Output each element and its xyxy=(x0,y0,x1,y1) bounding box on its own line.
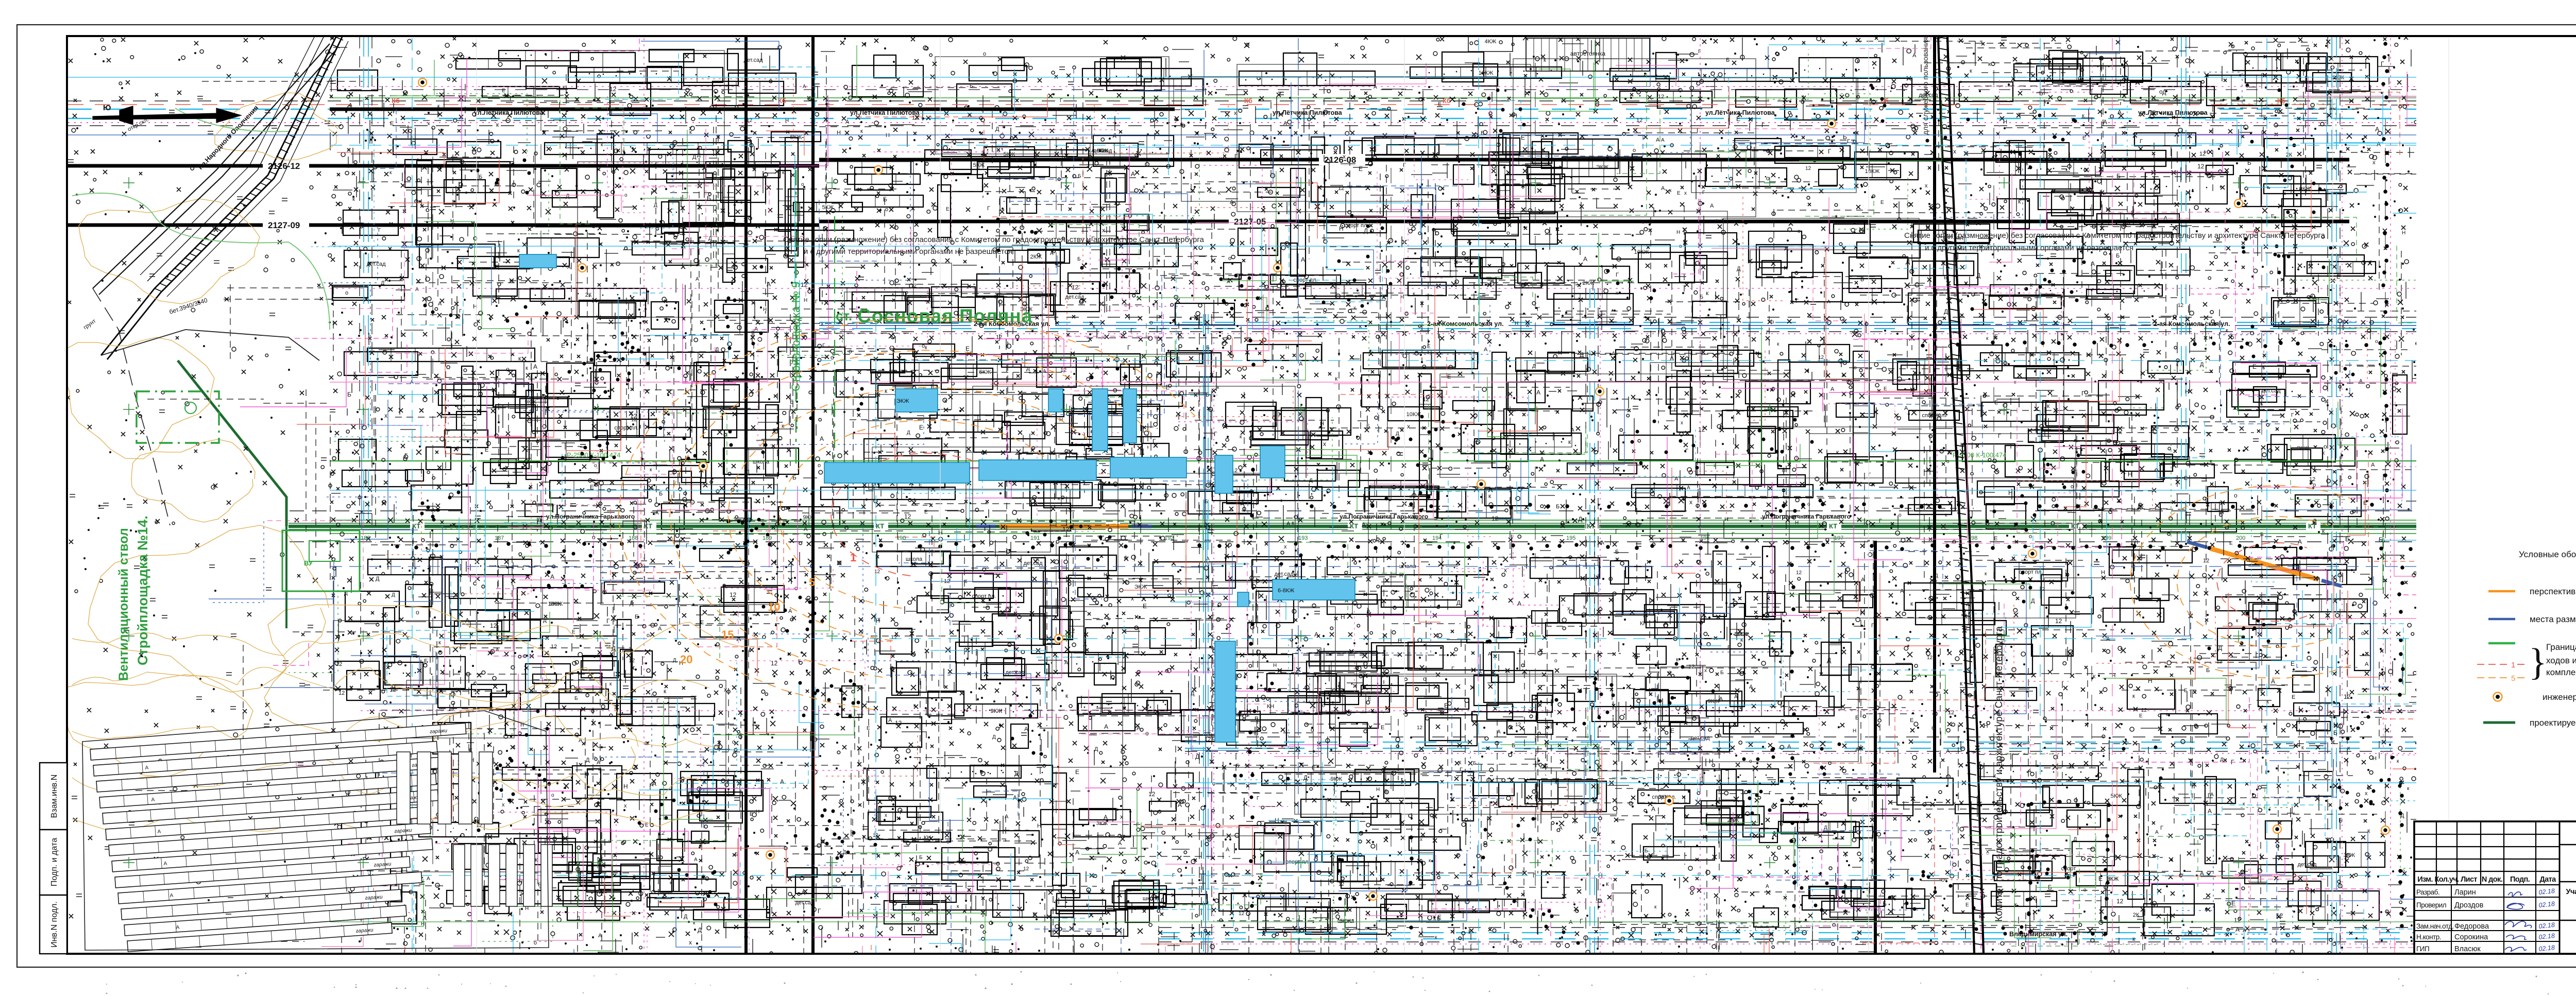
svg-text:192: 192 xyxy=(1164,535,1174,541)
svg-text:Снятие копии (размножение) без: Снятие копии (размножение) без согласова… xyxy=(783,235,1205,244)
svg-text:к: к xyxy=(2014,902,2017,908)
svg-text:о: о xyxy=(885,207,888,213)
svg-text:о: о xyxy=(594,463,597,469)
svg-text:КН: КН xyxy=(1640,621,1647,627)
svg-text:Е: Е xyxy=(1677,191,1681,196)
svg-text:к: к xyxy=(1207,665,1210,673)
svg-text:А: А xyxy=(1571,427,1574,433)
svg-text:Дата: Дата xyxy=(2539,875,2556,884)
svg-text:к: к xyxy=(1586,870,1589,878)
svg-text:2К: 2К xyxy=(2286,152,2293,158)
svg-text:Власюк: Власюк xyxy=(2454,945,2481,953)
svg-text:А: А xyxy=(754,326,758,332)
svg-text:Разраб.: Разраб. xyxy=(2416,888,2439,896)
svg-text:А: А xyxy=(1601,540,1604,546)
svg-text:Д: Д xyxy=(745,469,750,476)
svg-text:КТ: КТ xyxy=(1829,522,1837,530)
svg-text:к: к xyxy=(2296,288,2298,294)
svg-text:x: x xyxy=(1689,499,1692,506)
svg-text:ЭКЖ: ЭКЖ xyxy=(2297,445,2309,452)
svg-text:Б: Б xyxy=(1479,671,1483,678)
svg-text:196: 196 xyxy=(1700,535,1709,541)
svg-text:Д: Д xyxy=(1210,706,1214,712)
svg-text:о: о xyxy=(2150,900,2153,906)
svg-text:Б: Б xyxy=(1054,218,1057,225)
svg-text:А: А xyxy=(1283,121,1287,127)
svg-text:А: А xyxy=(1050,251,1054,256)
svg-text:о: о xyxy=(2029,534,2032,540)
svg-text:Д: Д xyxy=(2200,362,2204,368)
svg-text:о: о xyxy=(1149,319,1153,326)
svg-text:Б: Б xyxy=(1758,833,1762,838)
svg-text:к: к xyxy=(1960,680,1963,687)
svg-text:к: к xyxy=(1217,385,1219,390)
svg-text:12: 12 xyxy=(1422,396,1430,403)
svg-text:Н: Н xyxy=(1273,663,1277,668)
svg-text:Владимирская ул.: Владимирская ул. xyxy=(2009,931,2067,938)
svg-text:Б: Б xyxy=(1206,345,1210,351)
svg-text:дет.сад: дет.сад xyxy=(1023,560,1043,566)
svg-text:x: x xyxy=(1284,544,1287,550)
svg-text:12: 12 xyxy=(891,634,897,641)
svg-text:о: о xyxy=(1899,512,1902,518)
svg-text:А: А xyxy=(1918,673,1921,679)
svg-text:x: x xyxy=(1616,290,1618,296)
svg-text:193: 193 xyxy=(1298,535,1308,541)
svg-text:Б: Б xyxy=(1078,174,1081,179)
svg-text:Д: Д xyxy=(698,926,702,934)
svg-text:о: о xyxy=(416,609,419,616)
svg-text:о: о xyxy=(1311,726,1314,733)
svg-text:А: А xyxy=(1827,299,1831,305)
svg-text:ВУ: ВУ xyxy=(304,559,313,567)
svg-text:Д: Д xyxy=(684,914,688,920)
svg-text:А: А xyxy=(1226,847,1230,853)
svg-text:о: о xyxy=(1668,668,1672,676)
svg-text:x: x xyxy=(1953,800,1956,806)
svg-text:x: x xyxy=(1684,191,1687,196)
svg-text:199: 199 xyxy=(2102,535,2111,541)
svg-text:x: x xyxy=(1343,153,1346,160)
svg-text:А: А xyxy=(163,861,167,867)
svg-text:о: о xyxy=(1807,502,1810,507)
svg-text:Б: Б xyxy=(919,855,923,861)
svg-text:А: А xyxy=(801,889,805,897)
svg-text:Д: Д xyxy=(1976,272,1980,279)
svg-text:Г: Г xyxy=(1153,438,1156,445)
svg-text:Д: Д xyxy=(1580,351,1584,358)
svg-text:А: А xyxy=(1540,456,1544,463)
svg-text:к: к xyxy=(2132,935,2136,942)
svg-text:Е: Е xyxy=(1994,536,1997,542)
svg-text:к: к xyxy=(1910,600,1913,607)
svg-text:Е: Е xyxy=(1368,696,1371,702)
svg-text:проектируемая линия метрополит: проектируемая линия метрополитена xyxy=(2530,718,2576,728)
svg-text:12: 12 xyxy=(1338,882,1345,887)
svg-text:Г: Г xyxy=(1828,148,1832,155)
svg-text:Г: Г xyxy=(900,810,903,816)
svg-text:о: о xyxy=(1360,830,1363,836)
svg-text:Б: Б xyxy=(479,174,482,180)
svg-text:А: А xyxy=(1651,805,1655,813)
svg-text:Г: Г xyxy=(1755,926,1758,932)
svg-text:А: А xyxy=(2117,109,2122,116)
svg-text:Д: Д xyxy=(392,592,395,598)
svg-text:к: к xyxy=(1979,913,1982,920)
svg-text:к: к xyxy=(352,196,355,202)
svg-text:Н: Н xyxy=(886,132,890,139)
svg-text:А: А xyxy=(1484,347,1488,353)
svg-text:Б: Б xyxy=(1236,763,1240,769)
svg-text:дет.сад: дет.сад xyxy=(2297,862,2317,868)
svg-text:Б: Б xyxy=(2116,253,2120,259)
svg-text:ул.Лётчика Пилютова: ул.Лётчика Пилютова xyxy=(2138,109,2208,116)
svg-text:о: о xyxy=(1771,319,1774,325)
svg-text:Е: Е xyxy=(635,614,638,620)
svg-text:и с другими территориальными о: и с другими территориальными органами не… xyxy=(804,247,1012,256)
svg-text:А: А xyxy=(1661,185,1665,192)
svg-text:Б: Б xyxy=(659,491,663,497)
svg-text:к: к xyxy=(664,688,667,695)
svg-text:Д: Д xyxy=(2162,90,2166,96)
svg-text:А: А xyxy=(1043,369,1046,374)
svg-text:Г: Г xyxy=(1451,666,1454,672)
svg-text:12: 12 xyxy=(1818,355,1824,360)
svg-text:x: x xyxy=(1149,399,1152,405)
svg-text:Кб: Кб xyxy=(392,97,400,105)
svg-text:А: А xyxy=(1734,694,1738,700)
svg-text:Г: Г xyxy=(987,205,990,212)
svg-text:Г: Г xyxy=(1687,746,1690,753)
svg-text:12: 12 xyxy=(629,658,635,664)
svg-text:А: А xyxy=(1749,684,1753,690)
svg-text:Н.контр.: Н.контр. xyxy=(2416,933,2441,941)
svg-text:Д: Д xyxy=(929,907,933,913)
svg-text:198: 198 xyxy=(1968,535,1977,541)
svg-text:200: 200 xyxy=(2236,535,2245,541)
svg-text:Б: Б xyxy=(707,195,711,202)
svg-text:Г: Г xyxy=(459,308,462,314)
svg-text:Н: Н xyxy=(1984,722,1988,729)
svg-text:Г: Г xyxy=(1616,272,1619,278)
svg-text:дет.сад: дет.сад xyxy=(1274,571,1294,577)
svg-text:Д: Д xyxy=(708,236,712,242)
svg-text:12: 12 xyxy=(904,513,911,520)
svg-text:Г: Г xyxy=(1698,49,1701,55)
svg-text:Г: Г xyxy=(1058,454,1061,459)
svg-text:А: А xyxy=(2313,295,2317,302)
svg-text:к: к xyxy=(1218,189,1221,196)
svg-text:к: к xyxy=(2176,362,2179,368)
svg-text:школа: школа xyxy=(1337,918,1354,924)
svg-text:12: 12 xyxy=(747,118,753,124)
svg-text:Г: Г xyxy=(2326,158,2329,164)
svg-text:А: А xyxy=(1206,556,1210,562)
svg-text:к: к xyxy=(1897,740,1900,747)
svg-text:ЭКЖ: ЭКЖ xyxy=(1735,631,1748,638)
svg-text:А: А xyxy=(1131,170,1135,178)
svg-text:комплекса): комплекса) xyxy=(2546,667,2576,677)
svg-text:о: о xyxy=(1506,229,1510,236)
svg-text:Б: Б xyxy=(1481,130,1484,136)
svg-text:188: 188 xyxy=(629,535,638,541)
svg-text:А: А xyxy=(438,301,442,307)
svg-text:ГИП: ГИП xyxy=(2416,945,2429,953)
svg-text:А: А xyxy=(1124,555,1128,561)
svg-text:12: 12 xyxy=(2055,617,2062,625)
svg-text:Г: Г xyxy=(1956,822,1959,828)
svg-text:x: x xyxy=(944,397,947,404)
svg-text:10КЖ: 10КЖ xyxy=(1865,168,1880,175)
svg-text:12: 12 xyxy=(895,719,902,727)
svg-text:15: 15 xyxy=(721,628,734,641)
svg-text:Б: Б xyxy=(1843,133,1847,141)
svg-text:спорт пл.: спорт пл. xyxy=(972,593,996,599)
svg-text:x: x xyxy=(2024,553,2027,560)
svg-text:к: к xyxy=(1292,519,1295,526)
svg-text:Е: Е xyxy=(965,345,970,352)
svg-text:Г: Г xyxy=(1840,572,1843,578)
svg-text:к: к xyxy=(2030,281,2033,288)
svg-text:x: x xyxy=(2372,160,2376,166)
svg-text:А: А xyxy=(1612,351,1616,357)
svg-text:x: x xyxy=(885,813,887,818)
svg-text:А: А xyxy=(1178,801,1182,809)
svg-text:Б: Б xyxy=(2338,817,2343,824)
svg-text:А: А xyxy=(1341,688,1344,694)
svg-text:о: о xyxy=(2177,224,2180,230)
svg-text:Г: Г xyxy=(1127,344,1131,351)
svg-text:А: А xyxy=(1064,660,1069,666)
svg-text:пл.: пл. xyxy=(2064,873,2072,879)
svg-text:к: к xyxy=(1107,654,1109,660)
svg-text:x: x xyxy=(821,321,824,327)
svg-text:к: к xyxy=(1459,759,1462,766)
svg-text:Б: Б xyxy=(1645,848,1648,854)
svg-text:Д: Д xyxy=(577,916,580,921)
svg-text:к: к xyxy=(517,248,520,254)
svg-text:1: 1 xyxy=(850,551,856,564)
svg-text:Федорова: Федорова xyxy=(2454,922,2489,931)
svg-text:Б: Б xyxy=(883,196,887,203)
svg-text:к: к xyxy=(782,170,785,176)
svg-text:Г: Г xyxy=(592,479,596,485)
svg-text:Кб: Кб xyxy=(1244,97,1252,105)
svg-text:А: А xyxy=(1766,884,1769,889)
svg-text:А: А xyxy=(694,857,698,863)
svg-text:Г: Г xyxy=(2381,60,2384,67)
svg-text:к: к xyxy=(2224,938,2227,944)
svg-text:12: 12 xyxy=(2285,291,2293,298)
svg-text:Д: Д xyxy=(1632,87,1636,92)
svg-text:КТ: КТ xyxy=(876,522,884,530)
svg-text:А: А xyxy=(1095,365,1099,371)
svg-text:Б: Б xyxy=(1109,447,1113,452)
svg-text:x: x xyxy=(1925,183,1928,189)
svg-text:Б: Б xyxy=(1205,499,1208,505)
svg-text:Н: Н xyxy=(2209,335,2212,341)
svg-text:Комитет по градостроительству: Комитет по градостроительству и архитект… xyxy=(1994,626,2005,922)
svg-text:x: x xyxy=(1234,110,1237,116)
svg-text:Н: Н xyxy=(1724,517,1728,523)
svg-text:к: к xyxy=(895,795,897,801)
svg-text:x: x xyxy=(384,412,387,419)
svg-text:о: о xyxy=(1946,459,1950,465)
svg-text:А: А xyxy=(1374,84,1377,90)
svg-text:А: А xyxy=(1605,153,1609,161)
svg-text:x: x xyxy=(1420,837,1422,843)
svg-text:Г: Г xyxy=(815,299,818,305)
svg-text:к: к xyxy=(2407,786,2410,792)
svg-text:Е: Е xyxy=(1736,115,1740,123)
svg-text:Е: Е xyxy=(700,620,704,626)
svg-text:5КЖ: 5КЖ xyxy=(1004,151,1015,158)
svg-text:А: А xyxy=(2371,462,2375,468)
svg-text:x: x xyxy=(1704,668,1707,674)
svg-text:А: А xyxy=(550,573,554,580)
svg-text:о: о xyxy=(1931,724,1935,731)
svg-text:Е: Е xyxy=(924,509,928,515)
svg-text:Д: Д xyxy=(697,152,701,158)
svg-text:А: А xyxy=(1912,53,1917,59)
svg-text:А: А xyxy=(2235,926,2240,933)
svg-text:Дроздов: Дроздов xyxy=(2454,901,2484,909)
svg-text:Д: Д xyxy=(543,618,547,624)
svg-text:к: к xyxy=(1654,904,1657,910)
svg-text:Д: Д xyxy=(1944,308,1948,315)
svg-text:к: к xyxy=(2210,458,2212,465)
svg-text:Д: Д xyxy=(1532,364,1536,369)
svg-text:А: А xyxy=(1497,729,1501,735)
svg-text:к: к xyxy=(2283,664,2286,670)
svg-text:Г: Г xyxy=(1537,306,1540,313)
svg-text:к: к xyxy=(2132,693,2135,699)
svg-text:к: к xyxy=(1669,188,1672,194)
svg-text:Е: Е xyxy=(2184,475,2188,482)
svg-text:А: А xyxy=(1855,747,1859,753)
svg-text:Б: Б xyxy=(2131,210,2135,217)
svg-text:ЭКЖ: ЭКЖ xyxy=(896,398,909,404)
svg-text:12: 12 xyxy=(996,334,1002,340)
svg-text:194: 194 xyxy=(1432,535,1442,541)
svg-text:к: к xyxy=(885,387,888,394)
svg-text:Е: Е xyxy=(913,354,917,359)
svg-text:А: А xyxy=(176,925,180,931)
svg-text:А: А xyxy=(820,435,824,442)
svg-text:Б: Б xyxy=(1720,670,1724,676)
svg-text:Д: Д xyxy=(2218,644,2222,651)
svg-text:12: 12 xyxy=(1072,284,1079,291)
svg-text:Г: Г xyxy=(404,453,408,459)
svg-text:x: x xyxy=(446,846,449,853)
svg-text:места размещения вестибюлей: места размещения вестибюлей xyxy=(2530,614,2576,624)
svg-text:Е: Е xyxy=(415,226,418,231)
svg-text:ходов и щитовой проходки (и со: ходов и щитовой проходки (и сооружения с… xyxy=(2546,656,2576,665)
svg-text:А: А xyxy=(803,84,806,90)
svg-text:КТ: КТ xyxy=(1350,522,1358,530)
svg-text:Е: Е xyxy=(2271,214,2275,219)
svg-text:А: А xyxy=(1900,588,1904,594)
svg-text:Д: Д xyxy=(1827,657,1831,664)
svg-text:к: к xyxy=(2236,618,2239,624)
svg-text:12: 12 xyxy=(1698,426,1705,433)
svg-text:Г: Г xyxy=(1795,298,1799,304)
svg-text:к: к xyxy=(1986,336,1989,341)
svg-text:А: А xyxy=(1005,814,1009,820)
svg-text:А: А xyxy=(1075,849,1079,856)
svg-text:Условные обозначения:: Условные обозначения: xyxy=(2519,549,2576,559)
svg-text:А: А xyxy=(415,287,419,293)
svg-text:к: к xyxy=(693,920,696,926)
svg-text:Б: Б xyxy=(1156,501,1159,507)
svg-text:x: x xyxy=(718,224,721,229)
svg-text:А: А xyxy=(157,829,161,835)
svg-text:Б: Б xyxy=(1077,256,1081,262)
svg-text:Н: Н xyxy=(519,879,522,885)
svg-text:А: А xyxy=(655,510,659,516)
svg-text:о: о xyxy=(2361,630,2364,637)
svg-text:Стройплощадка №14.: Стройплощадка №14. xyxy=(135,516,150,665)
svg-text:А: А xyxy=(1710,203,1714,209)
svg-text:x: x xyxy=(1628,180,1631,187)
svg-text:к: к xyxy=(1838,637,1841,643)
svg-text:Б: Б xyxy=(2260,532,2264,538)
svg-text:к: к xyxy=(1435,935,1437,940)
svg-text:Е: Е xyxy=(946,207,950,212)
svg-text:20: 20 xyxy=(680,653,692,666)
svg-text:о: о xyxy=(1145,730,1149,737)
svg-text:Н: Н xyxy=(1678,839,1682,845)
svg-text:к: к xyxy=(1506,433,1509,439)
svg-text:Е: Е xyxy=(919,424,923,431)
svg-text:А: А xyxy=(2375,126,2379,133)
svg-text:к: к xyxy=(1488,492,1492,500)
svg-text:к: к xyxy=(2098,513,2101,519)
svg-text:Д: Д xyxy=(992,734,996,740)
svg-text:к: к xyxy=(1964,611,1967,617)
svg-text:Г: Г xyxy=(1879,518,1882,524)
svg-text:Д: Д xyxy=(995,126,999,132)
svg-text:КН: КН xyxy=(1267,703,1274,710)
svg-text:КТ: КТ xyxy=(644,522,652,530)
svg-text:Кб: Кб xyxy=(1443,97,1451,105)
svg-text:12: 12 xyxy=(338,690,345,696)
svg-text:12: 12 xyxy=(1927,655,1933,661)
svg-text:к: к xyxy=(2322,527,2325,535)
svg-text:к: к xyxy=(840,810,843,817)
svg-text:Д: Д xyxy=(1303,774,1308,781)
svg-text:187: 187 xyxy=(495,535,504,541)
svg-text:к: к xyxy=(1583,603,1586,610)
svg-text:4КЖ: 4КЖ xyxy=(1485,39,1497,45)
svg-text:к: к xyxy=(535,856,538,863)
svg-text:А: А xyxy=(1328,905,1332,911)
svg-text:А: А xyxy=(1104,814,1108,821)
svg-text:к: к xyxy=(526,365,528,371)
svg-text:А: А xyxy=(1583,255,1587,263)
svg-text:Д: Д xyxy=(381,280,385,286)
svg-text:2К: 2К xyxy=(585,292,592,298)
svg-text:к: к xyxy=(2243,801,2245,807)
svg-text:9КЖ: 9КЖ xyxy=(1708,698,1720,705)
svg-text:к: к xyxy=(1093,323,1095,330)
svg-text:Зам.нач.отд.: Зам.нач.отд. xyxy=(2416,922,2454,930)
svg-text:А: А xyxy=(1656,137,1660,143)
svg-text:Н: Н xyxy=(1399,573,1403,579)
svg-text:Б: Б xyxy=(2039,90,2043,97)
svg-text:x: x xyxy=(1953,148,1956,155)
svg-text:А: А xyxy=(1013,794,1017,801)
